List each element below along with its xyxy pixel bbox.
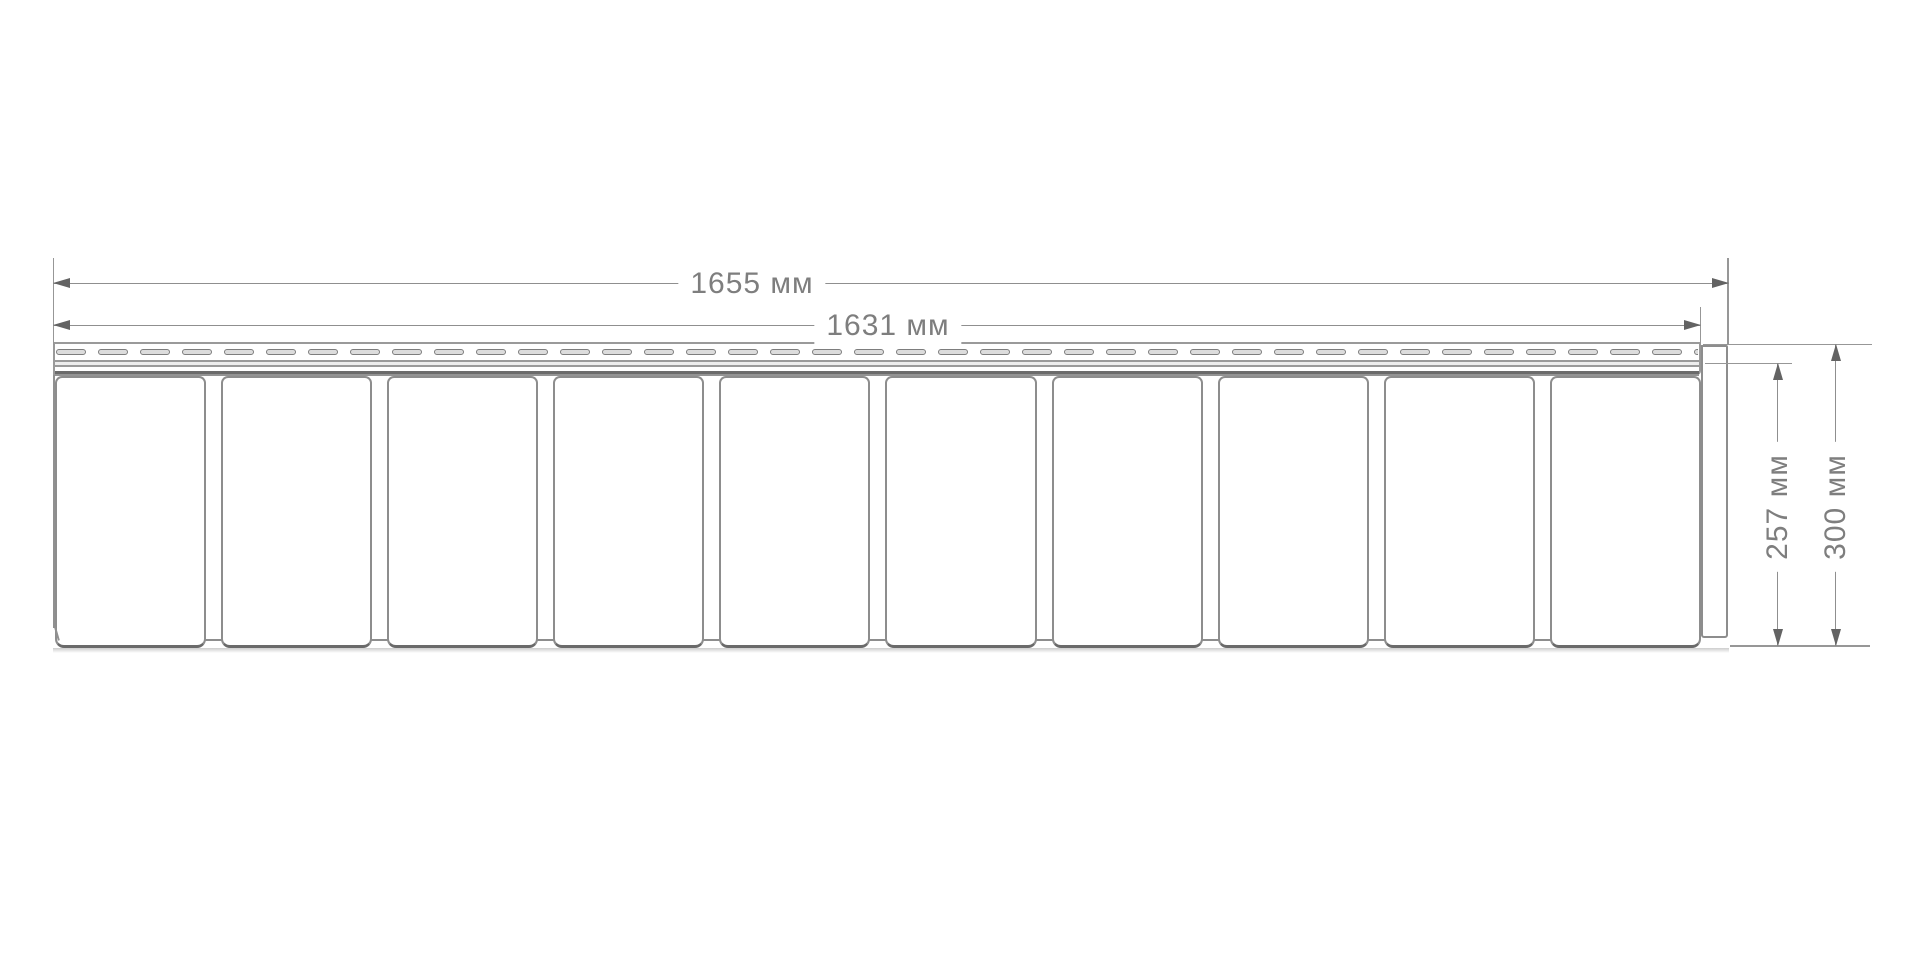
nail-slot (728, 349, 758, 355)
nail-slot (1526, 349, 1556, 355)
arrowhead-up-icon (1831, 344, 1841, 361)
hem-lock-edge-line (55, 374, 1699, 376)
dimension-label-overall-height: 300 мм (1817, 442, 1855, 572)
siding-panel (1550, 376, 1701, 648)
nail-slot (1022, 349, 1052, 355)
hem-groove-line (55, 365, 1699, 367)
siding-panel (1218, 376, 1369, 648)
nail-slot (1400, 349, 1430, 355)
nail-slot (1316, 349, 1346, 355)
nail-slot (476, 349, 506, 355)
nail-slot (224, 349, 254, 355)
extension-line-top-right (1703, 344, 1872, 346)
nail-slot (1484, 349, 1514, 355)
dimension-line-overall-width (53, 283, 1729, 285)
dimension-label-panel-width: 1631 мм (814, 307, 961, 345)
panel-bottom-shadow (53, 648, 1729, 653)
nail-slot (1568, 349, 1598, 355)
extension-line-right-outer (1727, 258, 1729, 345)
nail-slot (56, 349, 86, 355)
drawing-canvas: 1655 мм 1631 мм 257 мм 300 мм (0, 0, 1920, 960)
nail-slot (350, 349, 380, 355)
dimension-label-overall-width: 1655 мм (678, 265, 825, 303)
nail-slot (1064, 349, 1094, 355)
extension-line-bottom-right (1730, 645, 1870, 647)
nail-slot (770, 349, 800, 355)
nail-slot (896, 349, 926, 355)
arrowhead-left-icon (53, 320, 70, 330)
nail-slot (1694, 349, 1698, 355)
nail-slot (980, 349, 1010, 355)
nail-slot (1358, 349, 1388, 355)
arrowhead-down-icon (1831, 629, 1841, 646)
nail-slot (1190, 349, 1220, 355)
nail-slot (1148, 349, 1178, 355)
left-lock-edge (53, 375, 58, 628)
nail-slot (434, 349, 464, 355)
arrowhead-right-icon (1684, 320, 1701, 330)
nail-slot (602, 349, 632, 355)
nail-slot (266, 349, 296, 355)
nail-slot (98, 349, 128, 355)
nail-slot (854, 349, 884, 355)
siding-panel (221, 376, 372, 648)
nail-slot (392, 349, 422, 355)
nail-hem-strip (53, 342, 1701, 375)
nail-slot (560, 349, 590, 355)
siding-panel (1052, 376, 1203, 648)
siding-panel (553, 376, 704, 648)
siding-panel (719, 376, 870, 648)
arrowhead-up-icon (1773, 363, 1783, 380)
nail-slot (1610, 349, 1640, 355)
nail-slot (1442, 349, 1472, 355)
panel-row (55, 376, 1701, 648)
nail-slot (1652, 349, 1682, 355)
nail-slot (812, 349, 842, 355)
siding-panel (55, 376, 206, 648)
nail-slot (182, 349, 212, 355)
nail-slot (1106, 349, 1136, 355)
dimension-label-panel-height: 257 мм (1759, 442, 1797, 572)
nail-slot (518, 349, 548, 355)
arrowhead-left-icon (53, 278, 70, 288)
extension-line-right-inner (1700, 307, 1702, 370)
nail-slot (140, 349, 170, 355)
nail-slot (686, 349, 716, 355)
arrowhead-right-icon (1712, 278, 1729, 288)
nail-slot (308, 349, 338, 355)
siding-panel (885, 376, 1036, 648)
arrowhead-down-icon (1773, 629, 1783, 646)
extension-line-left (53, 258, 55, 345)
nail-slot (938, 349, 968, 355)
siding-panel (387, 376, 538, 648)
nail-slot-row (56, 349, 1698, 358)
nail-slot (1232, 349, 1262, 355)
nail-slot (1274, 349, 1304, 355)
siding-panel (1384, 376, 1535, 648)
right-lock-edge (1701, 345, 1728, 638)
nail-slot (644, 349, 674, 355)
